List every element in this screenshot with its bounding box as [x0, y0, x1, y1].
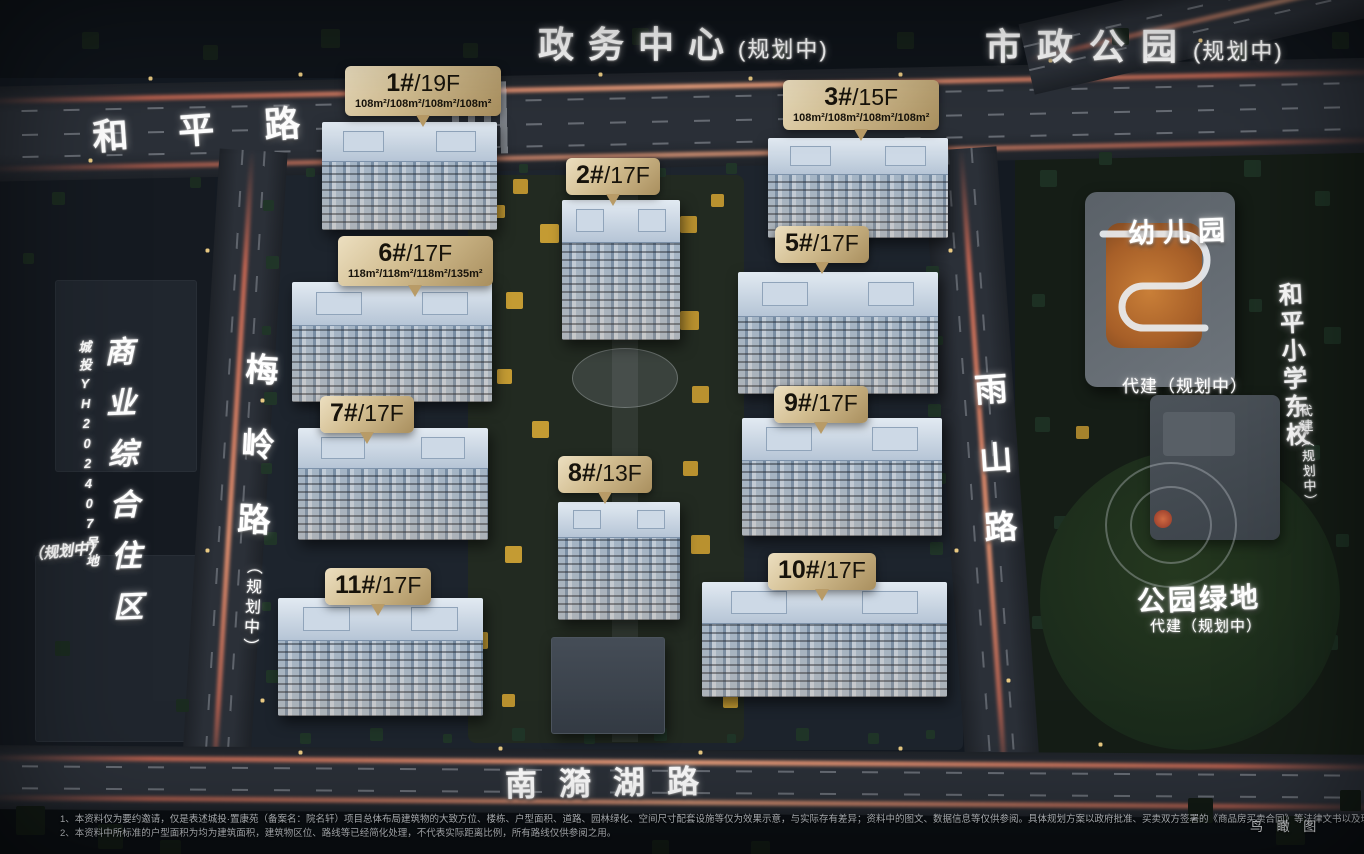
- view-type-label: 鸟 瞰 图: [1250, 816, 1321, 835]
- tag-7-floors: /17F: [358, 400, 404, 426]
- tag-8-id: 8#: [568, 459, 596, 487]
- tag-5-id: 5#: [785, 229, 813, 257]
- city-park-name: 市政公园: [985, 26, 1193, 67]
- gov-center-name: 政务中心: [538, 24, 738, 65]
- building-2: [562, 200, 680, 340]
- disclaimer-line-1: 1、本资料仅为要约邀请，仅是表述城投·置康苑（备案名：院名轩）项目总体布局建筑物…: [60, 813, 1364, 827]
- tag-9-floors: /17F: [812, 390, 858, 416]
- city-park-status: (规划中): [1193, 39, 1284, 64]
- building-tag-7: 7#/17F: [320, 396, 414, 433]
- building-tag-2: 2#/17F: [566, 158, 660, 195]
- gov-center-status: (规划中): [738, 37, 829, 62]
- building-5: [738, 272, 938, 394]
- building-7: [298, 428, 488, 540]
- building-tag-9: 9#/17F: [774, 386, 868, 423]
- label-green-park-name: 公园绿地: [1136, 576, 1261, 620]
- community-center-building: [552, 638, 664, 733]
- building-6: [292, 282, 492, 402]
- building-tag-8: 8#/13F: [558, 456, 652, 493]
- park-path-ring-inner: [1130, 486, 1212, 564]
- tag-10-id: 10#: [778, 556, 820, 584]
- tag-3-areas: 108m²/108m²/108m²/108m²: [793, 112, 929, 125]
- tag-9-id: 9#: [784, 389, 812, 417]
- tag-6-areas: 118m²/118m²/118m²/135m²: [348, 268, 483, 281]
- tag-2-floors: /17F: [604, 162, 650, 188]
- tag-11-floors: /17F: [375, 572, 421, 598]
- tag-2-id: 2#: [576, 161, 604, 189]
- tag-10-floors: /17F: [820, 557, 866, 583]
- label-road-nanyihu: 南漪湖路: [505, 756, 722, 806]
- label-kindergarten-name: 幼儿园: [1127, 208, 1233, 251]
- building-tag-11: 11#/17F: [325, 568, 431, 605]
- street-lamp-lights: [0, 0, 1, 1]
- disclaimer-line-2: 2、本资料中所标准的户型面积为均为建筑面积，建筑物区位、路线等已经简化处理，不代…: [60, 827, 616, 841]
- tag-11-id: 11#: [335, 571, 375, 599]
- building-tag-5: 5#/17F: [775, 226, 869, 263]
- building-tag-6: 6#/17F 118m²/118m²/118m²/135m²: [338, 236, 493, 286]
- label-city-park: 市政公园(规划中): [985, 18, 1284, 70]
- site-plan-root: 政务中心(规划中) 市政公园(规划中) 和平路 梅岭路 （规划中） 雨山路 南漪…: [0, 0, 1364, 854]
- tag-7-id: 7#: [330, 399, 358, 427]
- tag-1-floors: /19F: [414, 70, 460, 96]
- central-plaza: [572, 348, 678, 408]
- tag-5-floors: /17F: [813, 230, 859, 256]
- tag-1-areas: 108m²/108m²/108m²/108m²: [355, 98, 491, 111]
- tag-3-floors: /15F: [852, 84, 898, 110]
- label-kindergarten-note: 代建（规划中）: [1122, 372, 1248, 397]
- park-playground: [1154, 510, 1172, 528]
- tag-6-floors: /17F: [406, 240, 452, 266]
- label-gov-center: 政务中心(规划中): [538, 16, 829, 68]
- building-tag-1: 1#/19F 108m²/108m²/108m²/108m²: [345, 66, 501, 116]
- tag-8-floors: /13F: [596, 460, 642, 486]
- tag-1-id: 1#: [386, 69, 414, 97]
- building-tag-3: 3#/15F 108m²/108m²/108m²/108m²: [783, 80, 939, 130]
- building-9: [742, 418, 942, 536]
- building-8: [558, 502, 680, 620]
- building-3: [768, 138, 948, 238]
- tag-6-id: 6#: [378, 239, 406, 267]
- label-green-park-note: 代建（规划中）: [1150, 615, 1262, 636]
- tag-3-id: 3#: [824, 83, 852, 111]
- building-tag-10: 10#/17F: [768, 553, 876, 590]
